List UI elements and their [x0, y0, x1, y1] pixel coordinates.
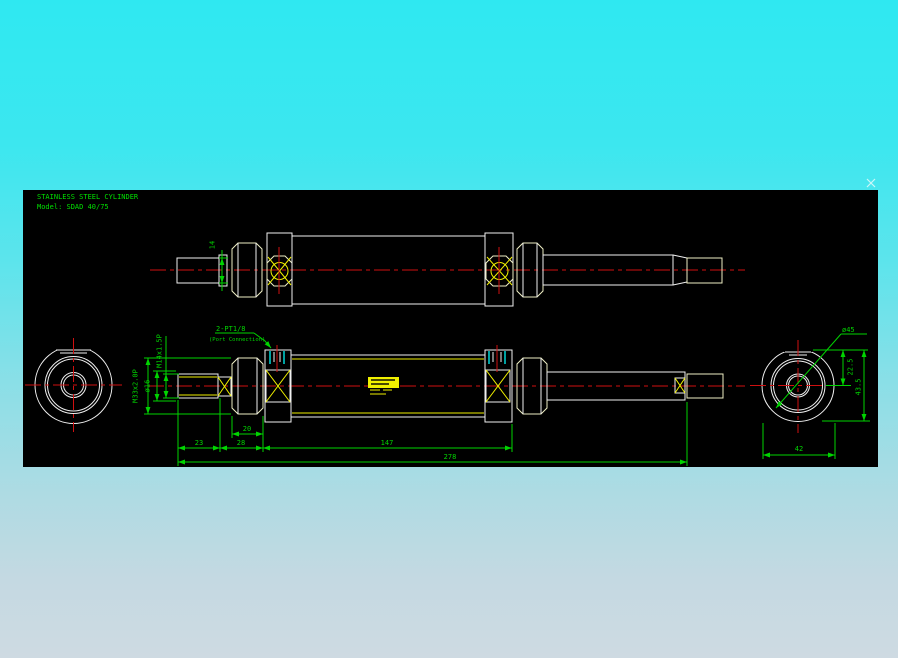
desktop-background: { "drawing": { "title_line1": "STAINLESS…	[0, 0, 898, 658]
dim-cap-width: 42	[763, 423, 835, 459]
dim-port-connection: 2-PT1/8 (Port Connection)	[209, 325, 271, 348]
svg-text:(Port Connection): (Port Connection)	[209, 337, 265, 343]
right-end-view	[750, 340, 848, 433]
svg-text:M14x1.5P: M14x1.5P	[156, 334, 164, 368]
svg-text:ø45: ø45	[842, 326, 855, 334]
bottom-side-view	[148, 345, 745, 422]
brand-sticker	[368, 377, 399, 394]
dim-rod-protrusion: 23	[195, 439, 203, 447]
left-end-view	[25, 338, 122, 432]
svg-text:20: 20	[243, 425, 251, 433]
svg-text:22.5: 22.5	[847, 359, 855, 376]
cad-drawing-canvas[interactable]: STAINLESS STEEL CYLINDER Model: SDAD 40/…	[23, 190, 878, 467]
port-marks-left	[270, 345, 284, 372]
dim-cap-height: 43.5	[855, 379, 863, 396]
dim-head-length: 28	[237, 439, 245, 447]
dim-chain: 23 28 147	[178, 398, 512, 466]
dim-rod-end-thread: M14x1.5P	[156, 334, 180, 398]
cylinder-drawing: STAINLESS STEEL CYLINDER Model: SDAD 40/…	[23, 190, 878, 467]
drawing-model: Model: SDAD 40/75	[37, 203, 109, 211]
svg-text:14: 14	[209, 241, 217, 249]
title-block: STAINLESS STEEL CYLINDER Model: SDAD 40/…	[37, 193, 139, 211]
top-side-view: 14	[150, 233, 745, 306]
svg-text:M33x2.0P: M33x2.0P	[132, 369, 140, 403]
dim-body-length: 147	[381, 439, 394, 447]
svg-text:278: 278	[444, 453, 457, 461]
drawing-title: STAINLESS STEEL CYLINDER	[37, 193, 139, 201]
dimensions: 2-PT1/8 (Port Connection) M33x2.0P ø16 M…	[132, 325, 871, 466]
port-marks-right	[489, 345, 505, 372]
svg-text:ø16: ø16	[144, 380, 152, 393]
svg-text:42: 42	[795, 445, 803, 453]
cursor-crosshair-icon	[864, 176, 878, 190]
svg-text:2-PT1/8: 2-PT1/8	[216, 325, 246, 333]
